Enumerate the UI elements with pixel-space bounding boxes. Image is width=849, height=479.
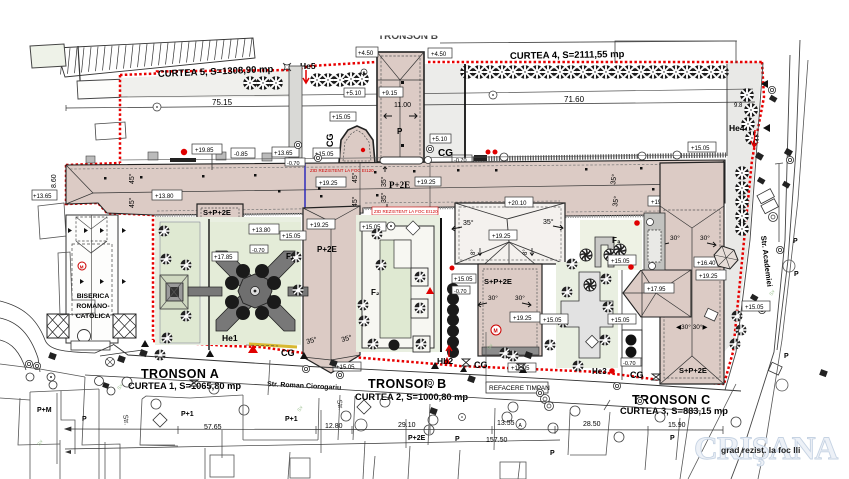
svg-text:30°: 30° (488, 294, 498, 302)
svg-text:BISERICA: BISERICA (77, 293, 110, 300)
svg-text:CURTEA 4, S=2111,55 mp: CURTEA 4, S=2111,55 mp (510, 49, 625, 62)
svg-text:P+2E: P+2E (317, 245, 337, 254)
svg-text:+15.05: +15.05 (454, 277, 473, 283)
svg-text:11.00: 11.00 (394, 102, 411, 109)
svg-text:75.15: 75.15 (212, 98, 233, 107)
svg-text:S+P+2E: S+P+2E (679, 366, 707, 375)
svg-text:28.50: 28.50 (583, 421, 601, 428)
svg-text:P+2E: P+2E (408, 435, 426, 442)
svg-text:Hb2: Hb2 (437, 356, 453, 366)
svg-text:CG: CG (630, 370, 644, 380)
svg-text:+15.05: +15.05 (611, 318, 630, 324)
svg-text:-0.70: -0.70 (623, 361, 636, 367)
svg-text:+19.25: +19.25 (492, 234, 511, 240)
svg-text:+5.10: +5.10 (432, 137, 448, 143)
svg-text:+13.65: +13.65 (274, 151, 293, 157)
svg-text:15.90: 15.90 (668, 422, 686, 429)
svg-text:13.55: 13.55 (497, 420, 515, 427)
svg-text:+19.25: +19.25 (417, 180, 436, 186)
svg-text:57.65: 57.65 (204, 424, 222, 431)
svg-text:P+1: P+1 (285, 416, 298, 423)
svg-text:P: P (794, 271, 799, 278)
svg-text:grad rezist. la foc lli: grad rezist. la foc lli (721, 445, 800, 455)
svg-text:He1: He1 (222, 333, 238, 343)
svg-text:P: P (550, 450, 555, 457)
svg-text:30°: 30° (515, 294, 525, 302)
svg-text:F₁: F₁ (286, 252, 295, 261)
svg-text:ZID REZISTENT LA FOC EI120: ZID REZISTENT LA FOC EI120 (374, 209, 438, 214)
svg-text:45°: 45° (128, 173, 136, 184)
svg-text:+20.10: +20.10 (508, 201, 527, 207)
svg-text:29.10: 29.10 (398, 422, 416, 429)
svg-text:+13.65: +13.65 (33, 194, 52, 200)
svg-text:He4: He4 (729, 123, 745, 133)
svg-text:12.80: 12.80 (325, 423, 343, 430)
svg-text:+19.25: +19.25 (513, 316, 532, 322)
svg-text:P+1: P+1 (181, 411, 194, 418)
svg-text:35°: 35° (463, 219, 474, 227)
svg-text:P+M: P+M (37, 407, 52, 414)
svg-text:+15.05: +15.05 (745, 305, 764, 311)
svg-text:P: P (82, 416, 87, 423)
svg-text:F₂: F₂ (371, 288, 380, 297)
svg-text:S+P+2E: S+P+2E (203, 208, 231, 217)
svg-text:45°: 45° (128, 197, 136, 208)
svg-text:71.60: 71.60 (564, 95, 585, 104)
svg-text:◀30° 30°▶: ◀30° 30°▶ (676, 323, 708, 331)
svg-text:ZID REZISTENT LA FOC EI120: ZID REZISTENT LA FOC EI120 (310, 168, 374, 173)
svg-text:157.50: 157.50 (486, 437, 508, 444)
svg-text:35°: 35° (543, 218, 554, 226)
svg-text:+19.25: +19.25 (699, 274, 718, 280)
svg-text:9.8: 9.8 (734, 103, 743, 109)
svg-text:+15.05: +15.05 (543, 318, 562, 324)
svg-text:P: P (784, 353, 789, 360)
svg-text:TRONSON B: TRONSON B (368, 377, 447, 391)
svg-text:35°: 35° (380, 192, 388, 203)
svg-text:+17.85: +17.85 (214, 255, 233, 261)
svg-text:+4.50: +4.50 (358, 51, 374, 57)
svg-text:+15.05: +15.05 (611, 259, 630, 265)
svg-text:-0.70: -0.70 (252, 248, 265, 254)
svg-text:45°: 45° (351, 172, 359, 183)
svg-text:P: P (397, 127, 403, 136)
svg-text:30°: 30° (670, 234, 680, 242)
svg-text:CG: CG (325, 134, 335, 148)
svg-text:+17.95: +17.95 (647, 287, 666, 293)
svg-text:+16.40: +16.40 (697, 261, 716, 267)
svg-text:ROMANO-: ROMANO- (76, 303, 109, 310)
svg-text:45°: 45° (351, 196, 359, 207)
svg-text:CG: CG (474, 360, 488, 370)
svg-text:M: M (80, 265, 84, 270)
svg-text:+15.05: +15.05 (332, 115, 351, 121)
svg-text:-0.85: -0.85 (234, 152, 248, 158)
svg-text:P: P (670, 435, 675, 442)
svg-text:P+2E: P+2E (389, 180, 410, 190)
svg-text:-0.70: -0.70 (454, 289, 467, 295)
svg-text:8°: 8° (471, 249, 477, 255)
svg-text:+13.80: +13.80 (155, 194, 174, 200)
svg-text:+5.10: +5.10 (346, 91, 362, 97)
svg-text:+19.25: +19.25 (319, 181, 338, 187)
svg-text:+9.15: +9.15 (382, 91, 398, 97)
svg-text:30°: 30° (700, 234, 710, 242)
svg-text:8.60: 8.60 (51, 174, 58, 188)
svg-text:8°: 8° (523, 249, 529, 255)
svg-text:+15.05: +15.05 (282, 234, 301, 240)
svg-text:+19.25: +19.25 (310, 223, 329, 229)
svg-text:+4.50: +4.50 (431, 52, 447, 58)
svg-text:M: M (494, 329, 498, 335)
svg-text:He3: He3 (592, 367, 607, 376)
svg-text:CG: CG (281, 348, 295, 358)
svg-text:+13.80: +13.80 (252, 228, 271, 234)
svg-text:-0.70: -0.70 (287, 161, 300, 167)
svg-text:+19.85: +19.85 (195, 148, 214, 154)
svg-text:+15.05: +15.05 (691, 146, 710, 152)
svg-text:S+P+2E: S+P+2E (484, 277, 512, 286)
svg-text:35°: 35° (380, 176, 388, 187)
